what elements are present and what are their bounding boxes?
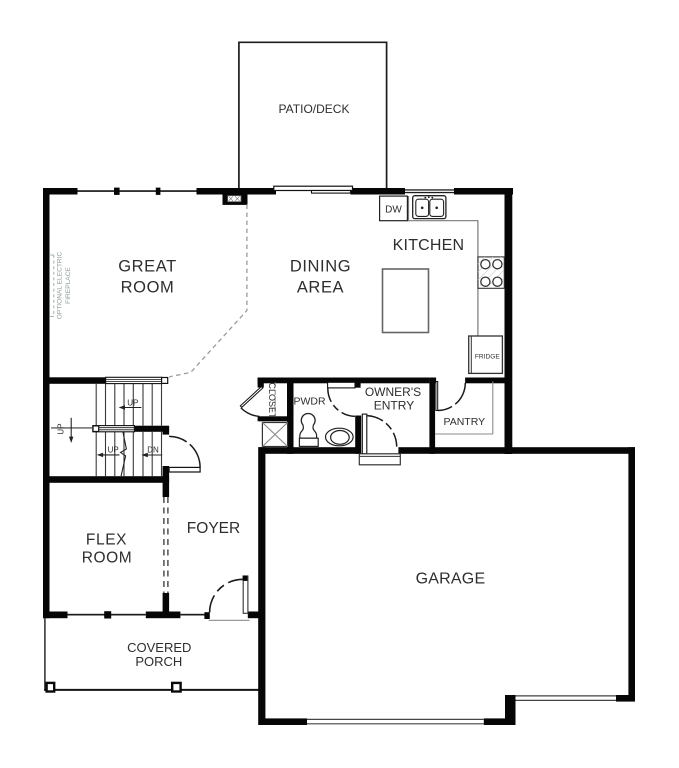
- svg-text:PATIO/DECK: PATIO/DECK: [279, 102, 350, 116]
- svg-text:DW: DW: [385, 204, 402, 215]
- svg-text:ENTRY: ENTRY: [374, 398, 414, 412]
- svg-text:DN: DN: [147, 446, 159, 455]
- svg-text:GREAT: GREAT: [118, 258, 177, 276]
- svg-text:OPTIONAL ELECTRIC: OPTIONAL ELECTRIC: [57, 251, 64, 319]
- svg-text:GARAGE: GARAGE: [416, 571, 486, 588]
- svg-text:CLOSET: CLOSET: [267, 382, 277, 419]
- svg-text:ROOM: ROOM: [121, 279, 175, 297]
- svg-text:UP: UP: [57, 423, 66, 434]
- svg-text:PORCH: PORCH: [135, 654, 182, 669]
- svg-text:AREA: AREA: [297, 278, 344, 296]
- svg-text:FOYER: FOYER: [187, 520, 240, 537]
- svg-text:PANTRY: PANTRY: [443, 416, 485, 428]
- svg-text:FLEX: FLEX: [86, 532, 127, 549]
- svg-text:ROOM: ROOM: [82, 550, 133, 567]
- svg-text:UP: UP: [108, 446, 119, 455]
- svg-text:FIREPLACE: FIREPLACE: [65, 267, 72, 304]
- svg-text:FRIDGE: FRIDGE: [475, 353, 501, 360]
- svg-text:KITCHEN: KITCHEN: [393, 237, 465, 254]
- svg-text:DINING: DINING: [290, 257, 351, 275]
- svg-text:UP: UP: [127, 399, 138, 408]
- svg-text:COVERED: COVERED: [127, 640, 191, 655]
- svg-text:OWNER'S: OWNER'S: [365, 385, 421, 399]
- svg-text:PWDR: PWDR: [293, 396, 325, 408]
